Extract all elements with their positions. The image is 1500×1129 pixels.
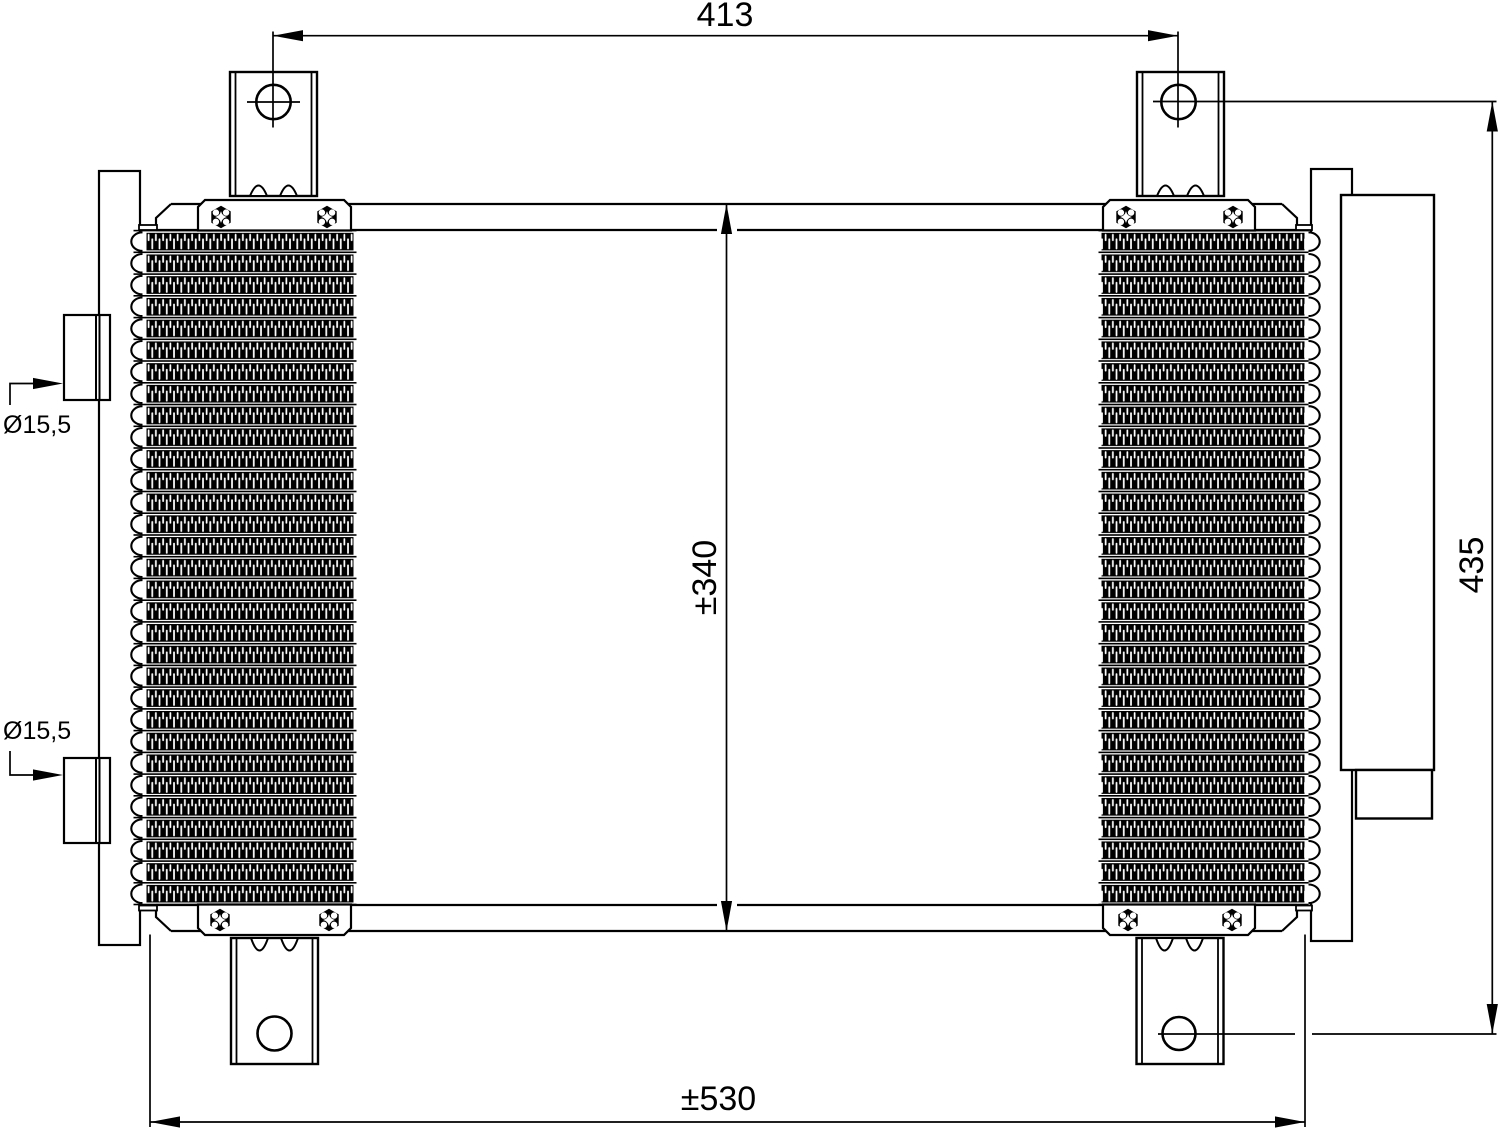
svg-text:Ø15,5: Ø15,5 xyxy=(3,717,71,745)
svg-text:±530: ±530 xyxy=(681,1080,756,1118)
svg-text:Ø15,5: Ø15,5 xyxy=(3,411,71,439)
svg-text:413: 413 xyxy=(697,0,754,34)
svg-text:435: 435 xyxy=(1453,537,1491,594)
svg-text:±340: ±340 xyxy=(686,540,724,615)
